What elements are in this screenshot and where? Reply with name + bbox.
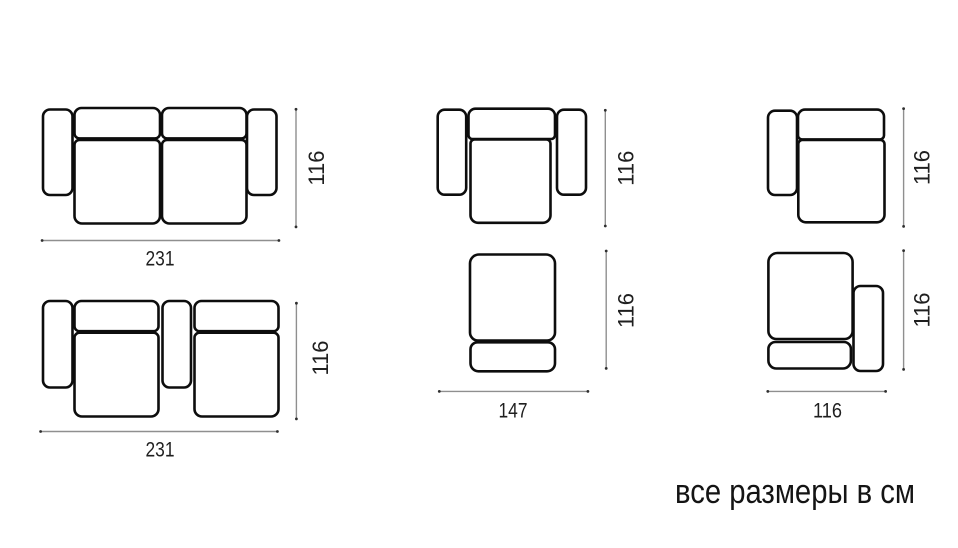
svg-text:116: 116 bbox=[614, 293, 639, 328]
svg-text:116: 116 bbox=[308, 340, 333, 375]
svg-text:147: 147 bbox=[499, 399, 528, 422]
svg-text:все размеры в см: все размеры в см bbox=[675, 473, 915, 511]
svg-text:116: 116 bbox=[813, 399, 842, 422]
svg-text:116: 116 bbox=[910, 292, 935, 327]
svg-text:231: 231 bbox=[146, 438, 175, 461]
svg-text:116: 116 bbox=[910, 150, 935, 185]
svg-text:116: 116 bbox=[613, 151, 638, 186]
svg-text:231: 231 bbox=[146, 247, 175, 270]
svg-text:116: 116 bbox=[304, 151, 329, 186]
